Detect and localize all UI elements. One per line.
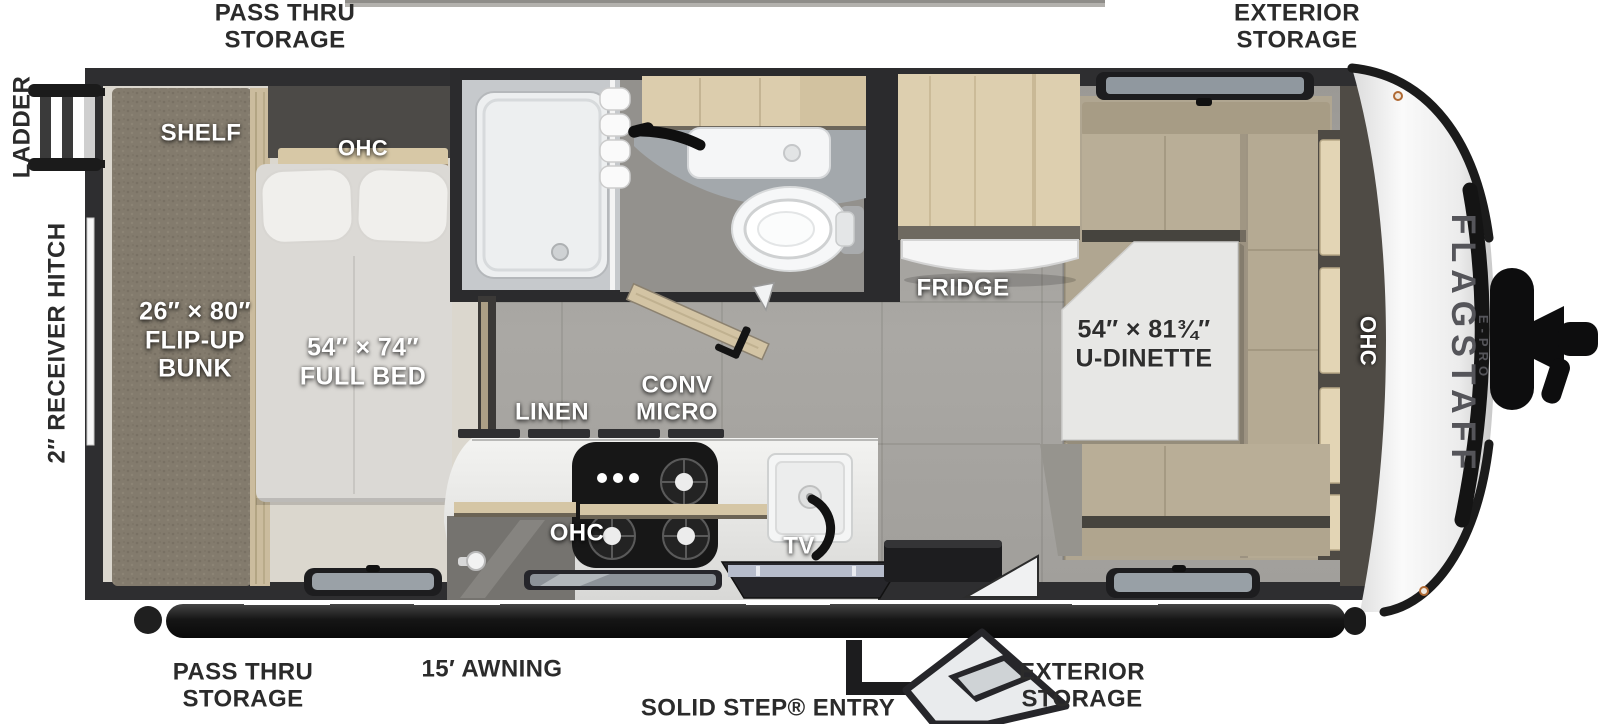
dinette-bench-bottom (1040, 444, 1330, 556)
label-bottom-pass-thru-storage: PASS THRU STORAGE (143, 659, 343, 714)
marker-light-top (1394, 92, 1402, 100)
shower (462, 80, 630, 290)
label-receiver-hitch: 2″ RECEIVER HITCH (43, 223, 70, 464)
hitch-coupler (1490, 268, 1598, 410)
label-top-exterior-storage: EXTERIOR STORAGE (1197, 0, 1397, 54)
bed-name: FULL BED (300, 362, 426, 391)
label-fridge: FRIDGE (916, 274, 1009, 301)
marker-light-bottom (1420, 587, 1428, 595)
dinette-name: U-DINETTE (1076, 344, 1213, 373)
dinette-bottom-window (1106, 565, 1260, 598)
awning-roller (134, 600, 1366, 638)
bunk-name-line2: BUNK (139, 354, 251, 383)
bed-dimension: 54″ × 74″ (300, 334, 426, 363)
label-entry: SOLID STEP® ENTRY (641, 694, 895, 721)
furnace-box (884, 540, 1002, 582)
bunk-name-line1: FLIP-UP (139, 326, 251, 355)
tv-unit (722, 562, 902, 598)
label-ladder: LADDER (8, 76, 35, 178)
label-full-bed: 54″ × 74″ FULL BED (300, 334, 426, 391)
label-shelf: SHELF (161, 119, 242, 146)
linen-closet (478, 296, 496, 444)
label-u-dinette: 54″ × 81¾″ U-DINETTE (1076, 316, 1213, 373)
micro-line: MICRO (636, 399, 718, 426)
bathroom-sink (688, 128, 830, 178)
label-awning: 15′ AWNING (422, 655, 563, 682)
label-top-pass-thru-storage: PASS THRU STORAGE (185, 0, 385, 54)
bedroom-window (304, 565, 442, 596)
dinette-dimension: 54″ × 81¾″ (1076, 316, 1213, 345)
label-bottom-exterior-storage: EXTERIOR STORAGE (982, 659, 1182, 714)
floorplan-page: FLAGSTAFF E-PRO PASS THRU STORAGE EXTERI… (0, 0, 1600, 724)
label-front-ohc: OHC (1355, 316, 1380, 366)
bunk-dimension: 26″ × 80″ (139, 297, 251, 326)
label-bed-ohc: OHC (338, 135, 388, 160)
receiver-hitch-bar (87, 218, 94, 445)
label-linen: LINEN (515, 398, 589, 425)
conv-line: CONV (636, 372, 718, 399)
ladder-icon (28, 84, 105, 171)
label-tv: TV (783, 532, 814, 559)
brand-sub-logo: E-PRO (1476, 315, 1491, 381)
roof-edge-shadow (345, 0, 1105, 3)
kitchen-window (524, 570, 722, 590)
label-kitchen-ohc: OHC (550, 519, 605, 546)
label-bunk: 26″ × 80″ FLIP-UP BUNK (139, 297, 251, 383)
label-conv-micro: CONV MICRO (636, 372, 718, 427)
kitchen-overhead-cabinet-edge (454, 502, 810, 519)
